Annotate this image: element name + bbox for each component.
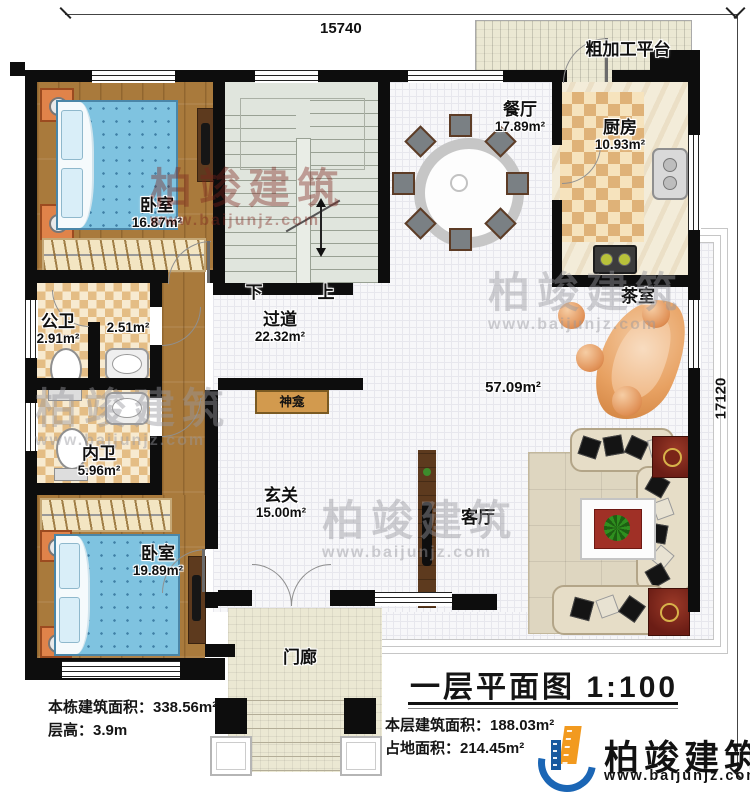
title-underline — [408, 702, 678, 705]
room-name: 餐厅 — [450, 100, 590, 119]
wall — [25, 270, 168, 283]
window — [255, 70, 318, 83]
shrine-cabinet: 神龛 — [255, 390, 329, 414]
wall — [552, 275, 700, 287]
wall — [150, 345, 162, 398]
sink-basin — [663, 158, 677, 172]
room-label-living: 客厅 — [408, 508, 548, 527]
plan-title: 一层平面图 1:100 — [410, 662, 678, 706]
medallion-icon — [660, 603, 679, 622]
side-table — [652, 436, 692, 478]
tea-stool — [558, 302, 585, 329]
room-label-tearoom: 茶室 — [568, 287, 708, 306]
wall — [25, 483, 162, 495]
window — [62, 661, 180, 678]
stair-stringer — [296, 138, 311, 285]
wall — [503, 70, 567, 82]
room-area: 57.09m² — [443, 380, 583, 397]
room-label-washroom: 2.51m² — [58, 320, 198, 335]
wall — [25, 70, 92, 82]
burner-icon — [600, 253, 613, 266]
room-name: 卧室 — [88, 544, 228, 563]
wall — [330, 590, 375, 606]
wall — [318, 70, 408, 82]
note-floor-area: 本层建筑面积：188.03m² — [385, 714, 554, 735]
side-table — [648, 588, 690, 636]
brand-logo-icon — [538, 724, 596, 784]
dimension-line-right — [737, 14, 738, 778]
porch-column — [215, 698, 247, 734]
dining-chair — [392, 172, 415, 195]
room-area: 2.51m² — [58, 320, 198, 335]
sink-basin — [112, 398, 142, 418]
note-footprint: 占地面积：214.45m² — [385, 737, 524, 758]
pillow — [61, 110, 83, 160]
stove — [593, 245, 637, 274]
pillow — [61, 168, 83, 218]
window — [375, 592, 452, 606]
room-label-corridor: 过道 22.32m² — [210, 310, 350, 344]
wall — [452, 594, 497, 610]
sink-basin — [112, 354, 142, 374]
window — [92, 70, 175, 83]
dining-chair — [506, 172, 529, 195]
room-area: 16.87m² — [87, 215, 227, 230]
dimension-tick — [59, 7, 71, 19]
room-area: 22.32m² — [210, 329, 350, 344]
stair-arrow-down — [316, 248, 326, 257]
cushion — [570, 597, 594, 621]
tea-stool — [612, 386, 642, 416]
floor-plan-canvas: 15740 17120 — [0, 0, 750, 794]
wall — [25, 82, 37, 300]
dining-chair — [449, 228, 472, 251]
wall — [213, 82, 225, 283]
dimension-tick — [733, 7, 745, 19]
sink — [105, 348, 149, 381]
note-building-area: 本栋建筑面积：338.56m² — [48, 696, 217, 717]
stair-up-label: 上 — [256, 283, 396, 302]
room-label-bedroom1: 卧室 16.87m² — [87, 196, 227, 230]
wall — [688, 368, 700, 612]
cushion — [624, 435, 649, 460]
room-label-porch: 门廊 — [230, 648, 370, 667]
pillow — [59, 543, 80, 589]
plant-icon — [604, 515, 630, 541]
note-floor-height: 层高：3.9m — [48, 719, 127, 740]
window — [688, 300, 701, 368]
wall — [218, 378, 363, 390]
cushion — [595, 594, 619, 618]
pillow — [59, 597, 80, 643]
porch-column-base — [210, 736, 252, 776]
stair-arrow-up — [316, 198, 326, 207]
dimension-line-top — [65, 14, 738, 15]
room-area: 5.96m² — [29, 463, 169, 478]
dimension-label-top: 15740 — [320, 20, 362, 37]
stair-direction-line — [320, 205, 322, 250]
room-name: 粗加工平台 — [558, 40, 698, 59]
tv-cabinet — [418, 450, 436, 608]
sink — [105, 392, 149, 425]
logo-building-blue — [551, 740, 561, 770]
room-name: 茶室 — [568, 287, 708, 306]
toilet — [48, 348, 82, 404]
wall — [210, 270, 225, 283]
wardrobe — [40, 498, 172, 532]
room-area: 10.93m² — [550, 137, 690, 152]
plant-icon — [423, 468, 431, 476]
room-name: 客厅 — [408, 508, 548, 527]
dimension-label-right: 17120 — [712, 378, 729, 420]
stair-text: 上 — [256, 283, 396, 302]
room-name: 玄关 — [211, 486, 351, 505]
room-name: 卧室 — [87, 196, 227, 215]
wall — [25, 378, 150, 390]
coffee-table — [580, 498, 656, 560]
porch-column-base — [340, 736, 382, 776]
room-label-private-bath: 内卫 5.96m² — [29, 444, 169, 478]
open-area-label: 57.09m² — [443, 380, 583, 397]
wall — [378, 82, 390, 283]
room-name: 内卫 — [29, 444, 169, 463]
cushion — [602, 434, 624, 456]
wall — [175, 70, 255, 82]
room-area: 19.89m² — [88, 563, 228, 578]
brand-url: www.baijunjz.com — [604, 768, 750, 784]
wall — [218, 590, 252, 606]
monitor-icon — [201, 123, 210, 165]
shrine-label: 神龛 — [279, 395, 304, 409]
dining-table-center — [450, 174, 468, 192]
kitchen-sink — [652, 148, 688, 200]
wall — [205, 592, 218, 608]
bedroom1-door-leaf — [207, 241, 210, 283]
sink-basin — [663, 176, 677, 190]
room-name: 过道 — [210, 310, 350, 329]
room-label-kitchen: 厨房 10.93m² — [550, 118, 690, 152]
title-underline-thin — [408, 708, 678, 709]
porch-column — [344, 698, 376, 734]
cushion — [578, 436, 602, 460]
room-label-platform: 粗加工平台 — [558, 40, 698, 59]
room-label-entry: 玄关 15.00m² — [211, 486, 351, 520]
room-name: 厨房 — [550, 118, 690, 137]
window — [408, 70, 503, 83]
wall — [552, 200, 562, 287]
wall-corner — [10, 62, 25, 76]
burner-icon — [618, 253, 631, 266]
room-name: 门廊 — [230, 648, 370, 667]
porch-steps — [247, 700, 344, 772]
cushion — [618, 595, 646, 623]
room-label-bedroom2: 卧室 19.89m² — [88, 544, 228, 578]
medallion-icon — [663, 448, 682, 467]
room-area: 15.00m² — [211, 505, 351, 520]
wall — [150, 283, 162, 307]
tea-stool — [576, 344, 604, 372]
wall — [205, 390, 218, 549]
